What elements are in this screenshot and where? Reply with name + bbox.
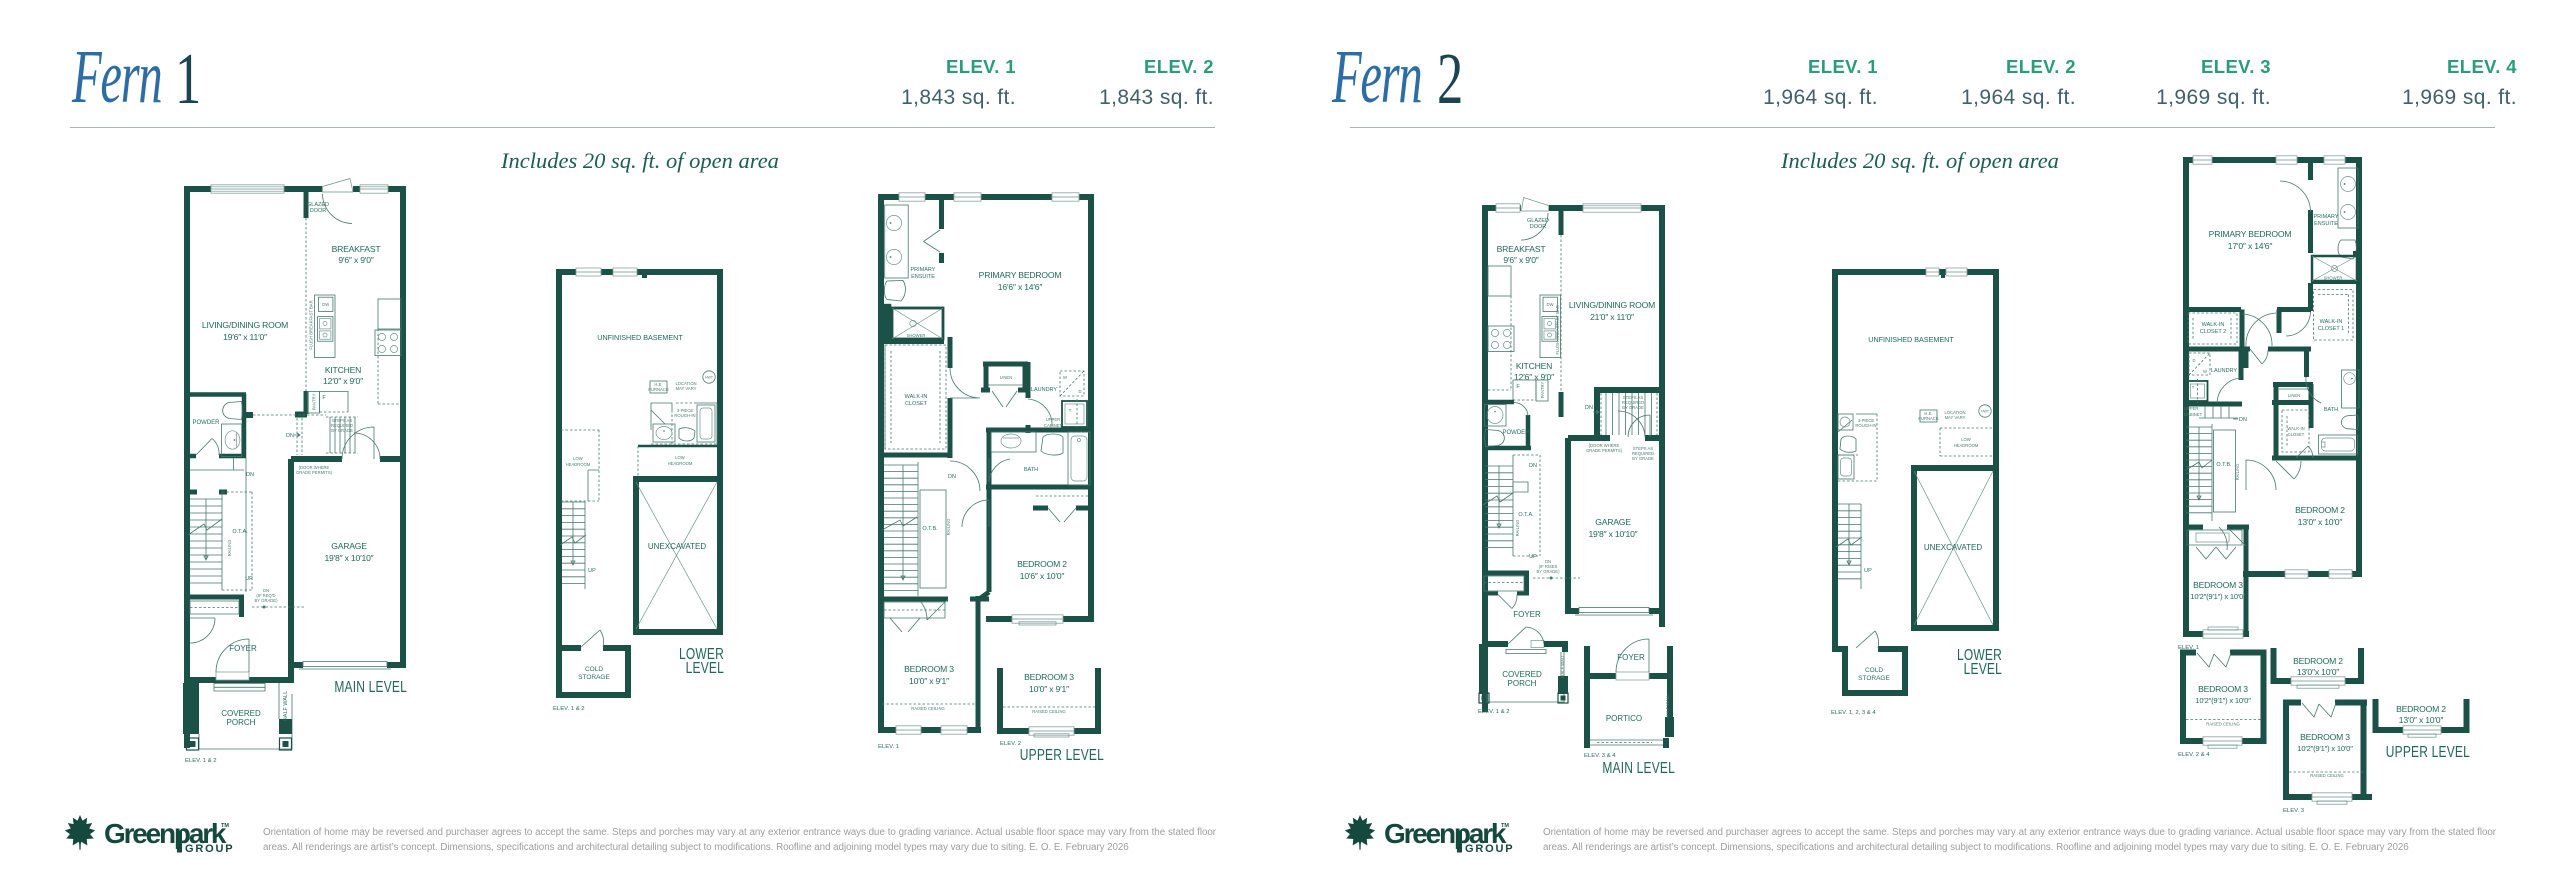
- svg-text:17′0″ x 14′6″: 17′0″ x 14′6″: [2228, 241, 2273, 251]
- svg-text:LINEN: LINEN: [1000, 375, 1012, 380]
- svg-text:19′8″ x 10′10″: 19′8″ x 10′10″: [1588, 529, 1637, 539]
- svg-text:KITCHEN: KITCHEN: [325, 365, 361, 375]
- svg-text:BEDROOM 3: BEDROOM 3: [904, 664, 954, 674]
- svg-text:DN: DN: [286, 433, 294, 439]
- svg-text:LINEN: LINEN: [2288, 393, 2300, 398]
- svg-text:FURNACE: FURNACE: [1918, 416, 1938, 421]
- svg-text:CABINET: CABINET: [2184, 412, 2203, 417]
- svg-text:10′0″ x 9′1″: 10′0″ x 9′1″: [1029, 684, 1069, 694]
- svg-text:DN: DN: [1585, 405, 1593, 411]
- svg-text:19′8″ x 10′10″: 19′8″ x 10′10″: [324, 553, 373, 563]
- svg-text:DW: DW: [1547, 302, 1554, 307]
- svg-text:UNEXCAVATED: UNEXCAVATED: [1924, 543, 1982, 552]
- svg-text:UP: UP: [1864, 568, 1872, 574]
- svg-text:RAISED CEILING: RAISED CEILING: [2206, 722, 2240, 727]
- svg-text:RAISED CEILING: RAISED CEILING: [911, 706, 945, 711]
- svg-text:PORCH: PORCH: [1508, 679, 1537, 688]
- svg-text:16′6″ x 14′6″: 16′6″ x 14′6″: [998, 282, 1043, 292]
- svg-text:12′0″ x 9′0″: 12′0″ x 9′0″: [323, 376, 363, 386]
- svg-text:STORAGE: STORAGE: [1858, 675, 1890, 682]
- svg-text:COLD: COLD: [585, 666, 603, 673]
- svg-text:UP: UP: [1529, 554, 1537, 560]
- svg-text:GARAGE: GARAGE: [1595, 517, 1631, 527]
- svg-text:RAISED CEILING: RAISED CEILING: [2310, 773, 2344, 778]
- svg-text:SHOWER: SHOWER: [2324, 276, 2343, 281]
- svg-text:UNEXCAVATED: UNEXCAVATED: [648, 542, 706, 551]
- svg-text:ELEV. 1 & 2: ELEV. 1 & 2: [185, 758, 217, 764]
- svg-text:DN: DN: [948, 474, 956, 480]
- svg-text:UNFINISHED BASEMENT: UNFINISHED BASEMENT: [1868, 335, 1954, 344]
- svg-text:UPPER: UPPER: [1046, 417, 1060, 422]
- svg-text:BY GRADE): BY GRADE): [1537, 569, 1561, 574]
- svg-text:DN: DN: [246, 472, 254, 478]
- svg-text:DOOR: DOOR: [310, 208, 327, 214]
- svg-text:FOYER: FOYER: [1513, 610, 1541, 619]
- svg-text:SHOWER: SHOWER: [907, 333, 926, 338]
- svg-text:GROUP: GROUP: [1465, 843, 1514, 855]
- svg-text:13′0″x 10′0″: 13′0″x 10′0″: [2297, 667, 2339, 677]
- svg-text:COLD: COLD: [1865, 667, 1883, 674]
- svg-text:FOYER: FOYER: [229, 644, 257, 653]
- svg-text:ELEV. 2 & 4: ELEV. 2 & 4: [2178, 752, 2210, 758]
- svg-text:BY GRADE): BY GRADE): [255, 598, 279, 603]
- svg-text:CLOSET 2: CLOSET 2: [2200, 329, 2227, 335]
- svg-text:STORAGE: STORAGE: [578, 674, 610, 681]
- svg-text:WALK-IN: WALK-IN: [2202, 322, 2225, 328]
- svg-text:ELEV. 3: ELEV. 3: [2283, 808, 2305, 814]
- svg-text:ELEV. 1, 2, 3 & 4: ELEV. 1, 2, 3 & 4: [1831, 710, 1876, 716]
- svg-text:10′2″(9′1″) x 10′0″: 10′2″(9′1″) x 10′0″: [2297, 744, 2353, 753]
- svg-text:BEDROOM 2: BEDROOM 2: [2293, 656, 2343, 666]
- svg-text:MAY VARY: MAY VARY: [676, 386, 697, 391]
- svg-text:W: W: [2203, 369, 2207, 374]
- svg-text:BATH: BATH: [1024, 467, 1038, 473]
- svg-text:BEDROOM 3: BEDROOM 3: [2193, 580, 2243, 590]
- svg-text:PORCH: PORCH: [227, 718, 256, 727]
- svg-text:13′0″ x 10′0″: 13′0″ x 10′0″: [2399, 715, 2444, 725]
- svg-text:HALF WALL: HALF WALL: [1665, 694, 1670, 718]
- svg-text:10′2″(9′1″) x 10′0″: 10′2″(9′1″) x 10′0″: [2190, 592, 2246, 601]
- svg-text:TM: TM: [221, 823, 229, 829]
- svg-text:ELEV. 1 & 2: ELEV. 1 & 2: [1478, 709, 1510, 715]
- svg-text:HWT: HWT: [705, 376, 714, 380]
- svg-text:COVERED: COVERED: [1502, 670, 1542, 679]
- svg-text:HEADROOM: HEADROOM: [566, 462, 591, 467]
- svg-text:10′0″ x 9′1″: 10′0″ x 9′1″: [909, 676, 949, 686]
- svg-text:GARAGE: GARAGE: [331, 541, 367, 551]
- svg-text:HALF WALL: HALF WALL: [283, 691, 289, 721]
- svg-text:LEVEL: LEVEL: [1964, 659, 2002, 677]
- svg-text:CABINET: CABINET: [1044, 423, 1063, 428]
- svg-text:FLUSH BREAKFAST BAR: FLUSH BREAKFAST BAR: [309, 300, 314, 349]
- svg-text:T: T: [1069, 408, 1072, 413]
- svg-text:LOW: LOW: [1961, 437, 1971, 442]
- svg-text:BY GRADE: BY GRADE: [1632, 456, 1654, 461]
- svg-text:PANTRY: PANTRY: [312, 393, 317, 410]
- svg-text:WALK-IN: WALK-IN: [2320, 319, 2343, 325]
- svg-text:LOW: LOW: [675, 455, 685, 460]
- svg-text:PRIMARY: PRIMARY: [2314, 214, 2339, 220]
- svg-text:ENSUITE: ENSUITE: [911, 274, 935, 280]
- svg-text:HWT: HWT: [1981, 410, 1990, 414]
- svg-text:HEADROOM: HEADROOM: [1954, 443, 1979, 448]
- svg-text:ELEV. 2: ELEV. 2: [1000, 741, 1021, 747]
- svg-text:13′0″ x 10′0″: 13′0″ x 10′0″: [2298, 517, 2343, 527]
- svg-text:FURNACE: FURNACE: [648, 387, 668, 392]
- svg-text:BREAKFAST: BREAKFAST: [332, 244, 382, 254]
- svg-text:MAY VARY: MAY VARY: [1945, 415, 1966, 420]
- svg-text:LIVING/DINING ROOM: LIVING/DINING ROOM: [202, 320, 288, 330]
- svg-text:F: F: [322, 395, 326, 401]
- svg-text:9′6″ x 9′0″: 9′6″ x 9′0″: [338, 255, 373, 265]
- svg-text:D: D: [1078, 389, 1081, 394]
- svg-text:D: D: [2192, 358, 2195, 363]
- svg-text:POWDER: POWDER: [1503, 430, 1531, 436]
- svg-text:CLOSET: CLOSET: [905, 401, 928, 407]
- svg-text:19′6″ x 11′0″: 19′6″ x 11′0″: [223, 332, 267, 342]
- svg-text:PRIMARY BEDROOM: PRIMARY BEDROOM: [979, 270, 1062, 280]
- svg-text:HALF WALL: HALF WALL: [1560, 654, 1565, 678]
- svg-text:RAILING: RAILING: [946, 519, 951, 536]
- svg-text:O.T.B.: O.T.B.: [2216, 462, 2232, 468]
- svg-text:BEDROOM 2: BEDROOM 2: [1017, 559, 1067, 569]
- svg-text:RAISED CEILING: RAISED CEILING: [1032, 709, 1066, 714]
- svg-text:O.T.A.: O.T.A.: [232, 529, 248, 535]
- svg-text:UNFINISHED BASEMENT: UNFINISHED BASEMENT: [597, 333, 683, 342]
- svg-text:LEVEL: LEVEL: [686, 658, 724, 676]
- svg-text:COVERED: COVERED: [221, 709, 261, 718]
- svg-text:DOOR: DOOR: [1530, 224, 1547, 230]
- svg-text:UPPER LEVEL: UPPER LEVEL: [1020, 745, 1104, 763]
- svg-text:BEDROOM 3: BEDROOM 3: [1024, 672, 1074, 682]
- svg-text:KITCHEN: KITCHEN: [1516, 361, 1552, 371]
- svg-text:O.T.A.: O.T.A.: [1518, 512, 1534, 518]
- svg-text:LIVING/DINING ROOM: LIVING/DINING ROOM: [1569, 300, 1655, 310]
- svg-text:F: F: [1516, 384, 1520, 390]
- svg-text:LAUNDRY: LAUNDRY: [2211, 368, 2238, 374]
- svg-text:BEDROOM 3: BEDROOM 3: [2198, 684, 2248, 694]
- svg-text:PANTRY: PANTRY: [1540, 381, 1545, 398]
- svg-text:BREAKFAST: BREAKFAST: [1497, 244, 1547, 254]
- svg-text:BEDROOM 2: BEDROOM 2: [2295, 505, 2345, 515]
- svg-text:O.T.B.: O.T.B.: [922, 526, 938, 532]
- svg-text:BY GRADE: BY GRADE: [1622, 405, 1644, 410]
- svg-text:GRADE PERMITS): GRADE PERMITS): [1586, 448, 1623, 453]
- svg-text:UPPER LEVEL: UPPER LEVEL: [2386, 742, 2470, 760]
- svg-text:BY GRADE: BY GRADE: [331, 428, 353, 433]
- svg-text:BEDROOM 2: BEDROOM 2: [2396, 704, 2446, 714]
- svg-text:ROUGH-IN: ROUGH-IN: [674, 413, 695, 418]
- svg-text:ENSUITE: ENSUITE: [2314, 221, 2338, 227]
- svg-text:UP: UP: [245, 576, 253, 582]
- svg-text:9′6″ x 9′0″: 9′6″ x 9′0″: [1503, 255, 1538, 265]
- svg-text:ELEV. 1: ELEV. 1: [878, 744, 899, 750]
- svg-text:CLOSET 1: CLOSET 1: [2318, 326, 2345, 332]
- svg-text:ROUGH-IN: ROUGH-IN: [1855, 423, 1876, 428]
- svg-text:W: W: [1063, 375, 1067, 380]
- svg-text:RAILING: RAILING: [227, 540, 232, 557]
- svg-text:DN: DN: [1529, 463, 1537, 469]
- svg-text:HEADROOM: HEADROOM: [668, 461, 693, 466]
- svg-text:RAILING: RAILING: [1515, 520, 1520, 537]
- svg-text:DN: DN: [2239, 417, 2247, 423]
- svg-text:21′0″ x 11′0″: 21′0″ x 11′0″: [1590, 312, 1634, 322]
- svg-text:PRIMARY BEDROOM: PRIMARY BEDROOM: [2209, 229, 2292, 239]
- svg-text:10′6″ x 10′0″: 10′6″ x 10′0″: [1020, 571, 1065, 581]
- svg-text:MAIN LEVEL: MAIN LEVEL: [334, 677, 407, 695]
- svg-text:GRADE PERMITS): GRADE PERMITS): [296, 470, 333, 475]
- svg-text:BEDROOM 3: BEDROOM 3: [2300, 732, 2350, 742]
- svg-text:PRIMARY: PRIMARY: [911, 267, 936, 273]
- svg-text:PORTICO: PORTICO: [1606, 714, 1642, 723]
- svg-text:UP: UP: [588, 568, 596, 574]
- svg-text:WALK-IN: WALK-IN: [905, 394, 928, 400]
- svg-text:MAIN LEVEL: MAIN LEVEL: [1602, 758, 1675, 776]
- svg-text:ELEV. 1 & 2: ELEV. 1 & 2: [553, 706, 585, 712]
- svg-text:UPPER: UPPER: [2184, 406, 2198, 411]
- svg-text:RAILING: RAILING: [2235, 464, 2240, 481]
- svg-text:WALK-IN: WALK-IN: [2287, 426, 2304, 431]
- svg-text:CLOSET: CLOSET: [2288, 432, 2305, 437]
- svg-text:DW: DW: [322, 302, 329, 307]
- svg-text:LOW: LOW: [573, 456, 583, 461]
- svg-text:GROUP: GROUP: [185, 843, 234, 855]
- svg-text:BATH: BATH: [2324, 407, 2338, 413]
- svg-text:T: T: [2192, 385, 2195, 390]
- svg-text:10′2″(9′1″) x 10′0″: 10′2″(9′1″) x 10′0″: [2195, 696, 2251, 705]
- svg-text:LAUNDRY: LAUNDRY: [1031, 387, 1058, 393]
- svg-text:TM: TM: [1501, 823, 1509, 829]
- svg-text:POWDER: POWDER: [193, 420, 221, 426]
